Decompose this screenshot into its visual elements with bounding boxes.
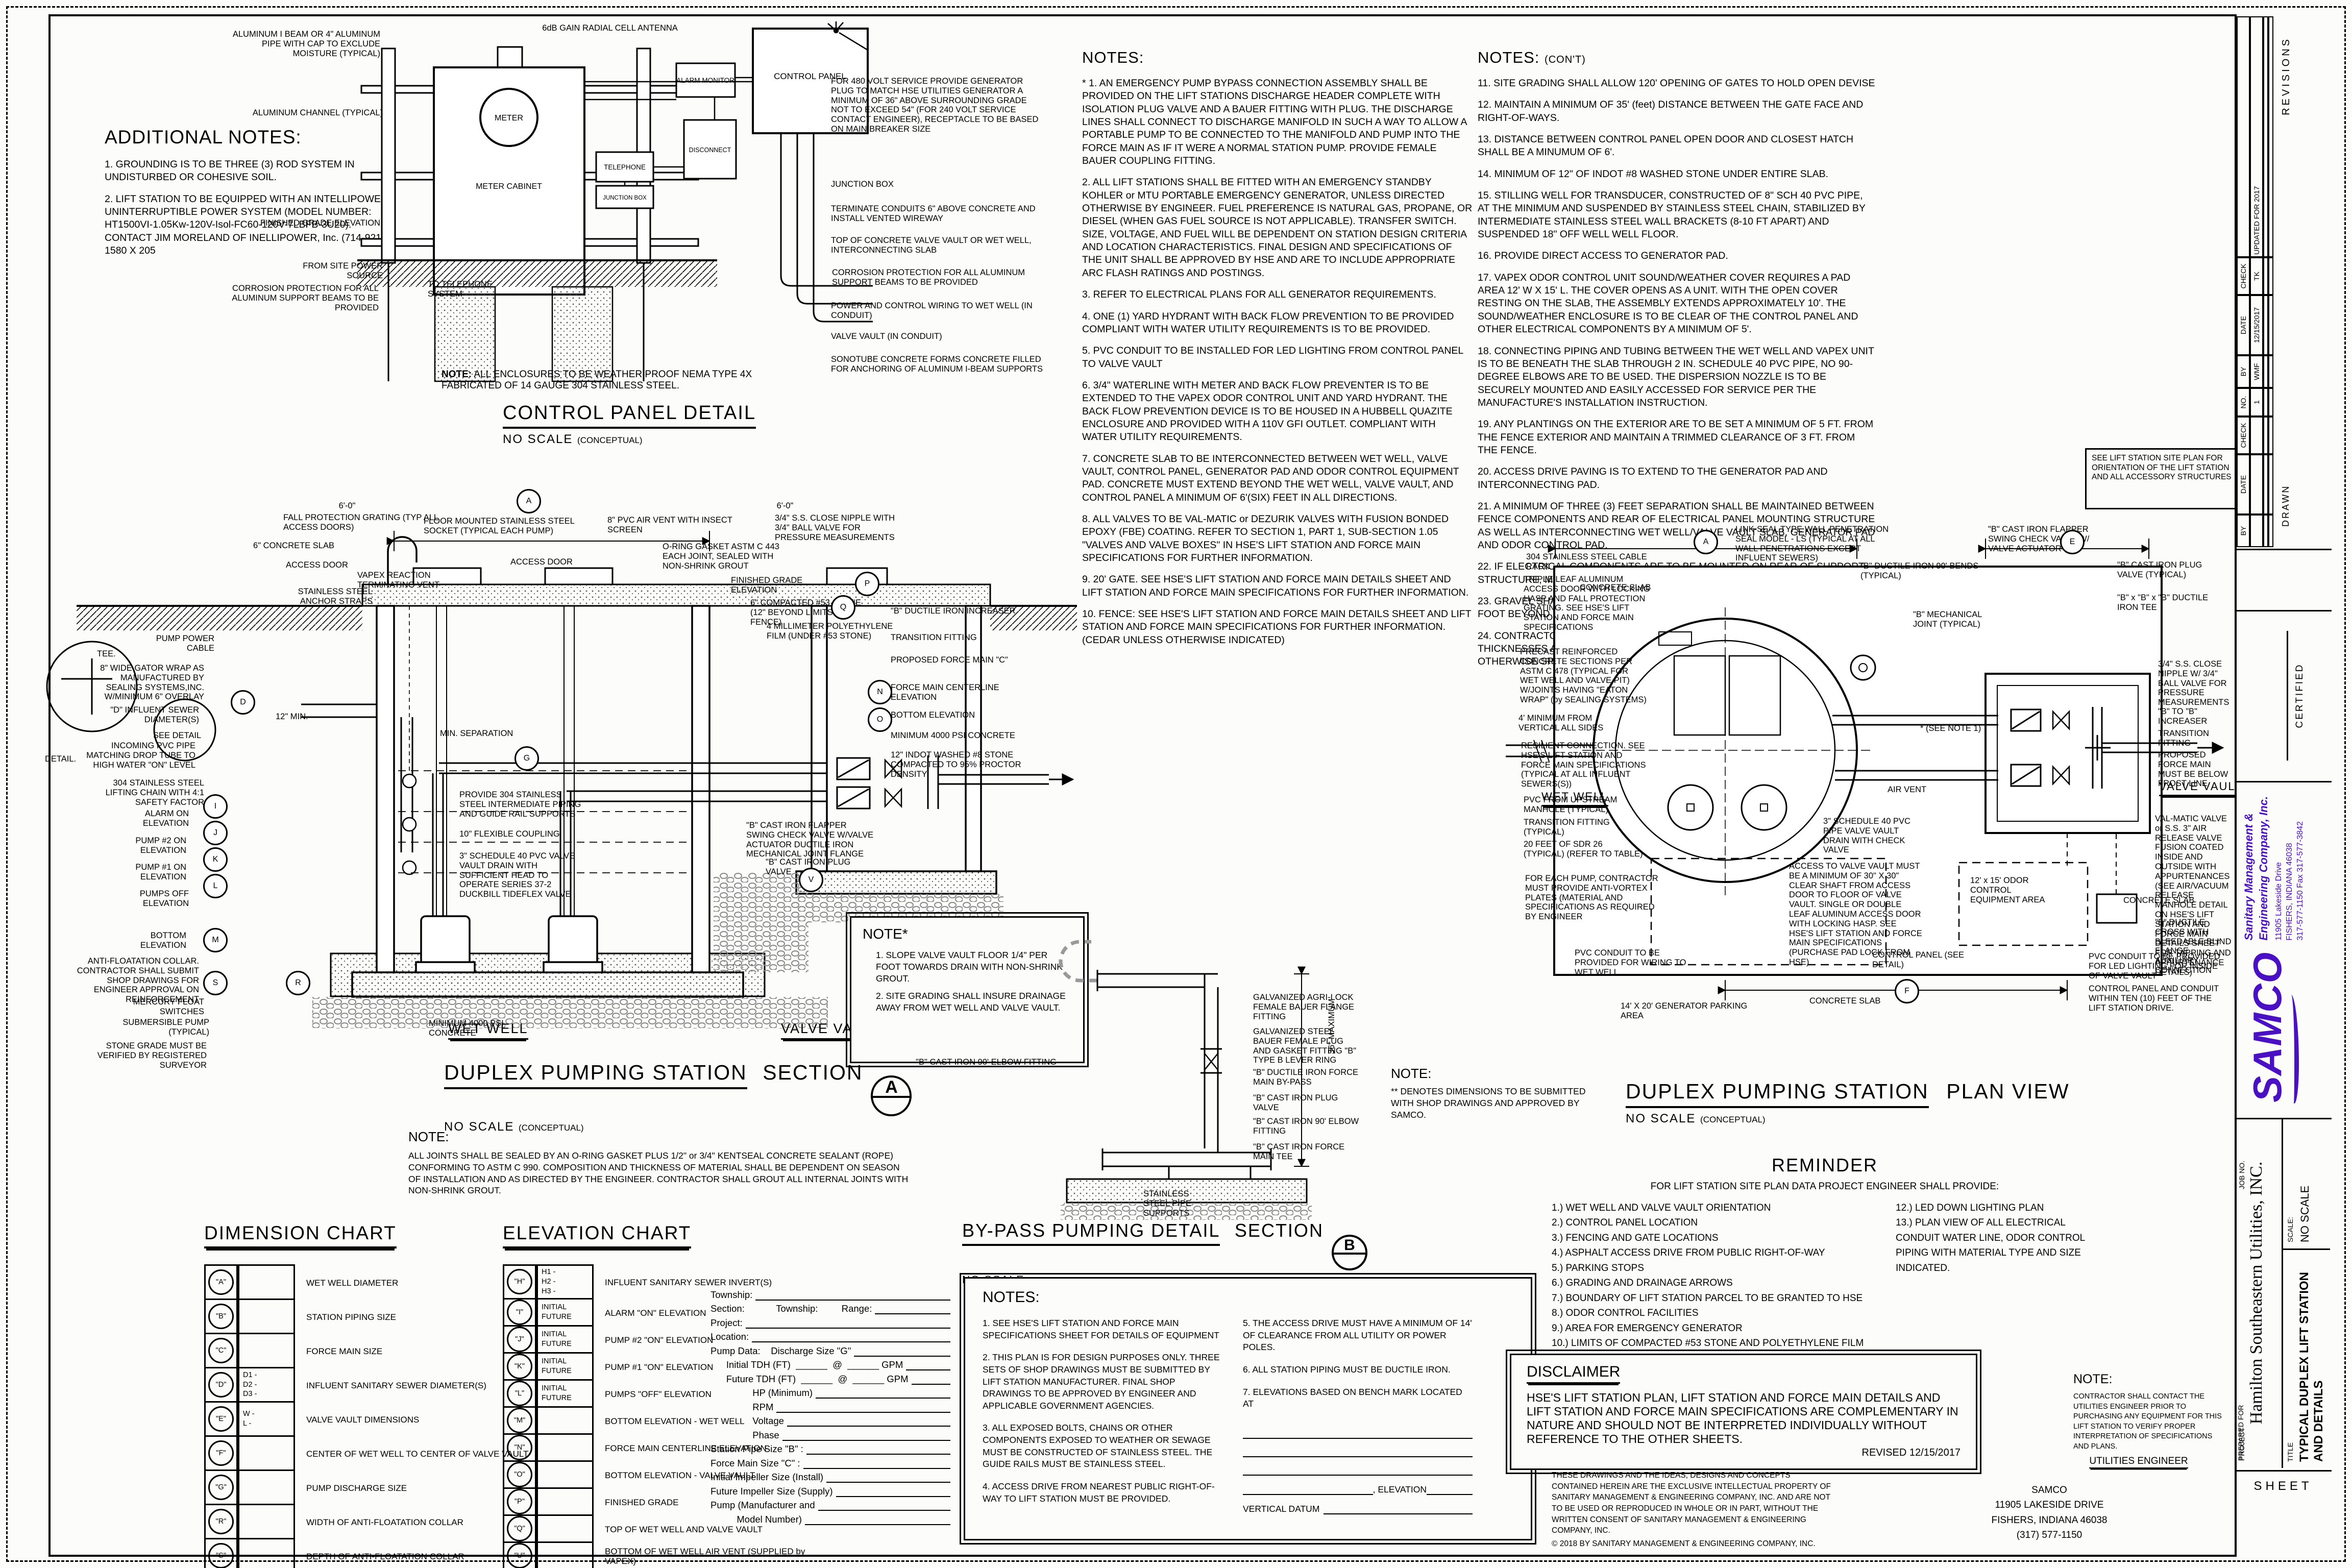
callout: * (SEE NOTE 1) bbox=[1920, 724, 1987, 733]
callout: "B" MECHANICAL JOINT (TYPICAL) bbox=[1913, 610, 2000, 629]
blank-rule bbox=[782, 1440, 950, 1441]
callout: STONE GRADE MUST BE VERIFIED BY REGISTER… bbox=[84, 1041, 207, 1070]
callout: "B" TO "B" INCREASER bbox=[2158, 707, 2232, 726]
disclaimer-revised: REVISED 12/15/2017 bbox=[1527, 1447, 1961, 1459]
reminder: REMINDER FOR LIFT STATION SITE PLAN DATA… bbox=[1552, 1155, 2098, 1381]
form-line: HP (Minimum) bbox=[710, 1385, 950, 1399]
reminder-item: 1.) WET WELL AND VALVE VAULT ORIENTATION bbox=[1552, 1200, 1878, 1215]
company-addr2: FISHERS, INDIANA 46038 bbox=[2285, 796, 2295, 941]
note-item: 20. ACCESS DRIVE PAVING IS TO EXTEND TO … bbox=[1478, 465, 1876, 492]
note-title: NOTE: bbox=[1391, 1066, 1610, 1082]
callout: SEE DETAIL bbox=[153, 731, 214, 741]
signature-line bbox=[2287, 631, 2288, 761]
section-balloon: B bbox=[1332, 1235, 1367, 1270]
callout: "B" CAST IRON PLUG VALVE bbox=[1253, 1093, 1360, 1113]
callout: 304 STAINLESS STEEL LIFTING CHAIN WITH 4… bbox=[84, 778, 204, 807]
junction-box-label: JUNCTION BOX bbox=[603, 195, 647, 201]
callout: "B" DUCTILE IRON INCREASER bbox=[891, 606, 1023, 616]
dim-balloon: O bbox=[868, 707, 892, 732]
note-item: 5. THE ACCESS DRIVE MUST HAVE A MINIMUM … bbox=[1243, 1317, 1473, 1354]
dim-balloon: L bbox=[203, 874, 228, 898]
callout: 3/4" S.S. CLOSE NIPPLE W/ 3/4" BALL VALV… bbox=[2158, 659, 2232, 707]
callout: 12" MIN. bbox=[276, 712, 322, 722]
callout: TO TELEPHONE SYSTEM bbox=[428, 280, 509, 299]
title-block-divider bbox=[2235, 1470, 2332, 1472]
dim-balloon: S bbox=[203, 971, 228, 995]
callout: "B" DUCTILE IRON FORCE MAIN BY-PASS bbox=[1253, 1068, 1360, 1087]
note-item: 7. ELEVATIONS BASED ON BENCH MARK LOCATE… bbox=[1243, 1386, 1473, 1410]
callout: 6" CONCRETE SLAB bbox=[232, 541, 334, 551]
callout: LINK-SEAL TYPE WALL PENETRATION SEAL MOD… bbox=[1735, 525, 1894, 563]
chart-row: "U" BOTTOM OF WET WELL AIR VENT (SUPPLIE… bbox=[503, 1543, 809, 1568]
notes-cont-title: NOTES: (CON'T) bbox=[1478, 48, 1876, 67]
callout: PUMP POWER CABLE bbox=[128, 634, 214, 653]
plan-title: DUPLEX PUMPING STATION bbox=[1626, 1080, 1929, 1108]
note-item: 2. ALL LIFT STATIONS SHALL BE FITTED WIT… bbox=[1082, 176, 1473, 280]
section-note: NOTE: ALL JOINTS SHALL BE SEALED BY AN O… bbox=[408, 1129, 914, 1196]
dim-balloon: A bbox=[1694, 530, 1718, 554]
benchmark-rule bbox=[1243, 1420, 1473, 1439]
section-balloon: A bbox=[871, 1075, 912, 1116]
callout: ALARM ON ELEVATION bbox=[105, 809, 189, 828]
dim-balloon: Q bbox=[831, 595, 855, 620]
dim-balloon: P bbox=[855, 572, 879, 596]
sonotube-footing bbox=[552, 287, 612, 381]
callout: GALVANIZED STEEL BAUER FEMALE PLUG AND G… bbox=[1253, 1027, 1360, 1065]
note-title: NOTE: bbox=[408, 1129, 914, 1145]
dim-balloon: R bbox=[286, 971, 310, 995]
certified-block: CERTIFIED bbox=[2237, 612, 2331, 779]
company-phone: 317-577-1150 Fax 317-577-3842 bbox=[2295, 796, 2306, 941]
blank-rule bbox=[776, 1412, 950, 1413]
sheet-box: SHEET bbox=[2237, 1479, 2330, 1493]
benchmark-rule bbox=[1243, 1457, 1473, 1476]
callout: "D" INFLUENT SEWER DIAMETER(S) bbox=[89, 705, 199, 725]
callout: CORROSION PROTECTION FOR ALL ALUMINUM SU… bbox=[832, 268, 1046, 287]
note-item: 6. ALL STATION PIPING MUST BE DUCTILE IR… bbox=[1243, 1364, 1473, 1376]
callout: DETAIL. bbox=[45, 754, 101, 764]
callout: PROPOSED FORCE MAIN "C" bbox=[891, 655, 1008, 665]
note-item: 9. 20' GATE. SEE HSE'S LIFT STATION AND … bbox=[1082, 573, 1473, 599]
callout: FOR 480 VOLT SERVICE PROVIDE GENERATOR P… bbox=[831, 77, 1045, 134]
drawing-sheet: ADDITIONAL NOTES: 1. GROUNDING IS TO BE … bbox=[0, 0, 2352, 1568]
scale-value: NO SCALE bbox=[2298, 1124, 2312, 1242]
form-line: Future TDH (FT) ______ @ ______ GPM bbox=[710, 1370, 950, 1385]
blank-rule bbox=[818, 1510, 950, 1511]
meter-cabinet-label: METER CABINET bbox=[476, 182, 542, 191]
reminder-subtitle: FOR LIFT STATION SITE PLAN DATA PROJECT … bbox=[1552, 1181, 2098, 1192]
plan-note: NOTE: ** DENOTES DIMENSIONS TO BE SUBMIT… bbox=[1391, 1066, 1610, 1120]
company-logo: SAMCO bbox=[2248, 952, 2299, 1102]
form-lines: Township:Section: Township: Range:Projec… bbox=[710, 1286, 950, 1525]
callout: PUMP #2 ON ELEVATION bbox=[105, 836, 186, 855]
reminder-item: 8.) ODOR CONTROL FACILITIES bbox=[1552, 1306, 1878, 1320]
note-item: 2. THIS PLAN IS FOR DESIGN PURPOSES ONLY… bbox=[983, 1352, 1222, 1412]
form-line: Project: bbox=[710, 1314, 950, 1329]
revisions-block: BY DATE CHECK NO. BY DATE CHECK 1 WMF 12… bbox=[2237, 16, 2331, 547]
form-line: Model Number) bbox=[710, 1511, 950, 1525]
blank-rule bbox=[746, 1328, 950, 1329]
reminder-title: REMINDER bbox=[1552, 1155, 2098, 1176]
plan-title-block: DUPLEX PUMPING STATION PLAN VIEW NO SCAL… bbox=[1626, 1080, 2070, 1126]
callout: 14' X 20' GENERATOR PARKING AREA bbox=[1621, 1001, 1763, 1021]
certified-label: CERTIFIED bbox=[2294, 612, 2306, 779]
callout: RESILIENT CONNECTION. SEE HSE'S LIFT STA… bbox=[1521, 741, 1651, 789]
blank-rule bbox=[803, 1468, 950, 1469]
callout: "B" CAST IRON PLUG VALVE (TYPICAL) bbox=[2117, 560, 2222, 580]
reminder-item: 6.) GRADING AND DRAINAGE ARROWS bbox=[1552, 1276, 1878, 1290]
callout: BOTTOM ELEVATION bbox=[105, 931, 186, 950]
bauer-hose-hook bbox=[1061, 942, 1097, 981]
callout: CORROSION PROTECTION FOR ALL ALUMINUM SU… bbox=[220, 284, 379, 312]
callout: TRANSITION FITTING bbox=[2158, 729, 2232, 748]
blank-rule bbox=[912, 1384, 950, 1385]
callout: FLOOR MOUNTED STAINLESS STEEL SOCKET (TY… bbox=[424, 517, 587, 536]
callout: O-RING GASKET ASTM C 443 EACH JOINT, SEA… bbox=[663, 542, 785, 571]
callout: PUMP #1 ON ELEVATION bbox=[105, 863, 186, 882]
callout: SONOTUBE CONCRETE FORMS CONCRETE FILLED … bbox=[831, 355, 1045, 374]
blank-rule bbox=[816, 1398, 950, 1399]
access-hatch bbox=[545, 568, 612, 584]
callout: SUBMERSIBLE PUMP (TYPICAL) bbox=[94, 1018, 209, 1037]
form-line: Pump (Manufacturer and bbox=[710, 1497, 950, 1511]
job-no-label: JOB NO. bbox=[2238, 1123, 2249, 1189]
company-name1: Sanitary Management & bbox=[2242, 796, 2257, 941]
scale-label: SCALE: bbox=[2286, 1124, 2294, 1242]
callout: STAINLESS STEEL PIPE SUPPORTS bbox=[1143, 1189, 1210, 1218]
company-block: SAMCO Sanitary Management & Engineering … bbox=[2237, 783, 2331, 1116]
note-item: 15. STILLING WELL FOR TRANSDUCER, CONSTR… bbox=[1478, 189, 1876, 241]
callout: 3/4" S.S. CLOSE NIPPLE WITH 3/4" BALL VA… bbox=[775, 513, 908, 542]
disclaimer: DISCLAIMER HSE'S LIFT STATION PLAN, LIFT… bbox=[1510, 1354, 1977, 1470]
stone-bed bbox=[312, 997, 828, 1028]
additional-notes: ADDITIONAL NOTES: 1. GROUNDING IS TO BE … bbox=[105, 127, 390, 266]
form-line: Township: bbox=[710, 1286, 950, 1301]
callout: PVC CONDUIT TO BE PROVIDED FOR WIRING TO… bbox=[1575, 948, 1692, 977]
grade-and-footings bbox=[357, 260, 717, 381]
reminder-item: 13.) PLAN VIEW OF ALL ELECTRICAL CONDUIT… bbox=[1896, 1215, 2090, 1276]
notes-box-title: NOTES: bbox=[983, 1289, 1513, 1306]
note-item: 4. ACCESS DRIVE FROM NEAREST PUBLIC RIGH… bbox=[983, 1481, 1222, 1505]
title-block-divider bbox=[2235, 549, 2332, 550]
conceptual-label: (CONCEPTUAL) bbox=[577, 435, 643, 445]
reminder-item: 12.) LED DOWN LIGHTING PLAN bbox=[1896, 1200, 2090, 1215]
callout: 6'-0" bbox=[327, 501, 367, 511]
note-item: 4. ONE (1) YARD HYDRANT WITH BACK FLOW P… bbox=[1082, 310, 1473, 336]
logo-swoosh bbox=[2286, 991, 2299, 1107]
dim-balloon: D bbox=[231, 690, 255, 715]
note-item: 17. VAPEX ODOR CONTROL UNIT SOUND/WEATHE… bbox=[1478, 272, 1876, 336]
project-label: PROJECT bbox=[2238, 1394, 2249, 1461]
note-item: 11. SITE GRADING SHALL ALLOW 120' OPENIN… bbox=[1478, 77, 1876, 90]
backfill-stone bbox=[714, 873, 808, 972]
note-item: 19. ANY PLANTINGS ON THE EXTERIOR ARE TO… bbox=[1478, 418, 1876, 457]
elevation-suffix: , ELEVATION bbox=[1373, 1484, 1427, 1495]
note-item: 12. MAINTAIN A MINIMUM OF 35' (feet) DIS… bbox=[1478, 99, 1876, 125]
disclaimer-body: HSE'S LIFT STATION PLAN, LIFT STATION AN… bbox=[1527, 1391, 1961, 1446]
reminder-item: 2.) CONTROL PANEL LOCATION bbox=[1552, 1215, 1878, 1230]
callout: "B" CAST IRON 90' ELBOW FITTING bbox=[914, 1058, 1057, 1067]
callout: ACCESS DOOR bbox=[510, 557, 582, 567]
blank-rule bbox=[752, 1341, 950, 1342]
callout: FOR EACH PUMP, CONTRACTOR MUST PROVIDE A… bbox=[1525, 874, 1663, 922]
wet-well-wall bbox=[692, 606, 709, 972]
project-info-block: PREPARED FOR Hamilton Southeastern Utili… bbox=[2237, 1118, 2331, 1468]
note-item: 14. MINIMUM OF 12" OF INDOT #8 WASHED ST… bbox=[1478, 168, 1876, 181]
section-title-block: DUPLEX PUMPING STATION SECTIONA NO SCALE… bbox=[444, 1061, 912, 1134]
callout: POWER AND CONTROL WIRING TO WET WELL (IN… bbox=[831, 301, 1045, 321]
callout: CONTROL PANEL AND CONDUIT WITHIN TEN (10… bbox=[2089, 984, 2224, 1013]
address-line1: 11905 LAKESIDE DRIVE bbox=[1963, 1498, 2136, 1512]
address-company: SAMCO bbox=[1963, 1483, 2136, 1498]
reminder-item: 5.) PARKING STOPS bbox=[1552, 1261, 1878, 1276]
callout: MERCURY FLOAT SWITCHES bbox=[97, 997, 204, 1017]
callout: JUNCTION BOX bbox=[831, 180, 933, 189]
callout: PRECAST REINFORCED CONCRETE SECTIONS PER… bbox=[1520, 647, 1648, 705]
bypass-title: BY-PASS PUMPING DETAIL bbox=[962, 1220, 1220, 1246]
section-title: DUPLEX PUMPING STATION bbox=[444, 1061, 747, 1089]
note-text: ALL ENCLOSURES TO BE WEATHER PROOF NEMA … bbox=[442, 369, 752, 391]
dim-balloon: K bbox=[203, 847, 228, 872]
copyright-body: THESE DRAWINGS AND THE IDEAS, DESIGNS AN… bbox=[1552, 1470, 1837, 1536]
reminder-item: 9.) AREA FOR EMERGENCY GENERATOR bbox=[1552, 1321, 1878, 1336]
address-line2: FISHERS, INDIANA 46038 bbox=[1963, 1513, 2136, 1528]
copyright: THESE DRAWINGS AND THE IDEAS, DESIGNS AN… bbox=[1552, 1470, 1837, 1550]
note-body: ALL JOINTS SHALL BE SEALED BY AN O-RING … bbox=[408, 1150, 914, 1196]
note-item: 3. ALL EXPOSED BOLTS, CHAINS OR OTHER CO… bbox=[983, 1422, 1222, 1471]
note-item: 6. 3/4" WATERLINE WITH METER AND BACK FL… bbox=[1082, 379, 1473, 444]
note-item: 18. CONNECTING PIPING AND TUBING BETWEEN… bbox=[1478, 345, 1876, 410]
callout: GALVANIZED AGRI-LOCK FEMALE BAUER FLANGE… bbox=[1253, 993, 1360, 1021]
dim-balloon: N bbox=[868, 680, 892, 704]
blank-rule bbox=[755, 1300, 950, 1301]
engineer-note: NOTE: CONTRACTOR SHALL CONTACT THE UTILI… bbox=[2073, 1372, 2226, 1452]
callout: 12" INDOT WASHED #8 STONE COMPACTED TO 9… bbox=[891, 750, 1034, 779]
form-line: Future Impeller Size (Supply) bbox=[710, 1483, 950, 1497]
callout: "B" CAST IRON FLAPPER SWING CHECK VALVE … bbox=[1988, 525, 2113, 553]
callout: "B" x "B" x "B" DUCTILE IRON TEE bbox=[2117, 593, 2222, 612]
dimension-chart-title: DIMENSION CHART bbox=[204, 1222, 397, 1248]
dim-balloon: G bbox=[514, 746, 539, 771]
form-line: Initial Impeller Size (Install) bbox=[710, 1469, 950, 1483]
form-line: RPM bbox=[710, 1399, 950, 1413]
callout: "B" CAST IRON FORCE MAIN TEE bbox=[1253, 1142, 1360, 1162]
note-item: 3. REFER TO ELECTRICAL PLANS FOR ALL GEN… bbox=[1082, 288, 1473, 301]
callout: TERMINATE CONDUITS 6" ABOVE CONCRETE AND… bbox=[831, 204, 1045, 224]
callout: ALUMINUM CHANNEL (TYPICAL) bbox=[240, 108, 383, 118]
callout: STAINLESS STEEL ANCHOR STRAPS bbox=[265, 587, 373, 606]
note-item: 16. PROVIDE DIRECT ACCESS TO GENERATOR P… bbox=[1478, 250, 1876, 262]
notes-box-left: 1. SEE HSE'S LIFT STATION AND FORCE MAIN… bbox=[983, 1317, 1222, 1515]
revisions-table: BY DATE CHECK NO. BY DATE CHECK 1 WMF 12… bbox=[2237, 16, 2273, 547]
station-data-form: Township:Section: Township: Range:Projec… bbox=[710, 1286, 950, 1525]
note-title: NOTE: bbox=[2073, 1372, 2226, 1387]
callout: 3" SCHEDULE 40 PVC VALVE VAULT DRAIN WIT… bbox=[459, 851, 587, 899]
note-item: 13. DISTANCE BETWEEN CONTROL PANEL OPEN … bbox=[1478, 133, 1876, 159]
callout: FINISHED GRADE ELEVATION bbox=[731, 576, 848, 595]
callout: 6dB GAIN RADIAL CELL ANTENNA bbox=[541, 23, 679, 33]
form-line: Phase bbox=[710, 1427, 950, 1441]
drawn-label: DRAWN bbox=[2281, 485, 2292, 527]
callout: FORCE MAIN CENTERLINE ELEVATION bbox=[891, 683, 1018, 702]
wet-well-label: WET WELL bbox=[448, 1021, 528, 1040]
dim-balloon: E bbox=[2060, 530, 2085, 554]
prepared-for: Hamilton Southeastern Utilities, INC. bbox=[2247, 1118, 2266, 1468]
callout: TRANSITION FITTING (TYPICAL) bbox=[1524, 818, 1641, 837]
blank-rule bbox=[854, 1356, 950, 1357]
meter-label: METER bbox=[495, 114, 523, 122]
form-line: Voltage bbox=[710, 1413, 950, 1427]
callout: 36" MAXIMUM bbox=[1327, 988, 1337, 1054]
disconnect-label: DISCONNECT bbox=[689, 146, 731, 154]
notes-title: NOTES: bbox=[1082, 48, 1473, 67]
note-item: 7. CONCRETE SLAB TO BE INTERCONNECTED BE… bbox=[1082, 453, 1473, 504]
alarm-monitor-label: ALARM MONITOR bbox=[676, 77, 734, 84]
dim-balloon: J bbox=[203, 821, 228, 845]
callout: PVC FROM UPSTREAM MANHOLE (TYPICAL) bbox=[1524, 795, 1646, 815]
reminder-item: 10.) LIMITS OF COMPACTED #53 STONE AND P… bbox=[1552, 1336, 1878, 1351]
revisions-label: REVISIONS bbox=[2281, 37, 2292, 115]
sonotube-footing bbox=[435, 287, 495, 381]
callout: 8" WIDE GATOR WRAP AS MANUFACTURED BY SE… bbox=[84, 664, 204, 702]
note-body: CONTRACTOR SHALL CONTACT THE UTILITIES E… bbox=[2073, 1392, 2226, 1452]
note-item: 1. SEE HSE'S LIFT STATION AND FORCE MAIN… bbox=[983, 1317, 1222, 1341]
callout: 8" PVC AIR VENT WITH INSECT SCREEN bbox=[607, 516, 735, 535]
blank-rule bbox=[826, 1482, 950, 1483]
callout: 3" SCHEDULE 40 PVC PIPE VALVE VAULT DRAI… bbox=[1823, 817, 1918, 855]
benchmark-rule bbox=[1243, 1439, 1473, 1457]
blank-rule bbox=[875, 1313, 950, 1314]
bottom-notes-box: NOTES: 1. SEE HSE'S LIFT STATION AND FOR… bbox=[964, 1277, 1532, 1540]
blank-rule bbox=[906, 1369, 950, 1370]
company-addr1: 11905 Lakeside Drive bbox=[2274, 796, 2285, 941]
note-item: * 1. AN EMERGENCY PUMP BYPASS CONNECTION… bbox=[1082, 77, 1473, 167]
form-line: Force Main Size "C" : bbox=[710, 1455, 950, 1469]
form-line: Pump Data: Discharge Size "G" bbox=[710, 1342, 950, 1357]
callout: 4' MINIMUM FROM VERTICAL ALL SIDES bbox=[1518, 714, 1626, 733]
orientation-note-box: SEE LIFT STATION SITE PLAN FOR ORIENTATI… bbox=[2085, 448, 2242, 509]
elevation-chart-title: ELEVATION CHART bbox=[503, 1222, 691, 1248]
sheet-label: SHEET bbox=[2253, 1479, 2312, 1493]
callout: VALVE VAULT (IN CONDUIT) bbox=[831, 332, 984, 341]
note-item: 10. FENCE: SEE HSE'S LIFT STATION AND FO… bbox=[1082, 608, 1473, 647]
reminder-item: 7.) BOUNDARY OF LIFT STATION PARCEL TO B… bbox=[1552, 1291, 1878, 1306]
note-item: 5. PVC CONDUIT TO BE INSTALLED FOR LED L… bbox=[1082, 345, 1473, 371]
form-line: Initial TDH (FT) ______ @ ______ GPM bbox=[710, 1357, 950, 1371]
company-name2: Engineering Company, Inc. bbox=[2257, 796, 2271, 941]
callout: 4 MILLIMETER POLYETHYLENE FILM (UNDER #5… bbox=[767, 622, 894, 641]
note-body: ** DENOTES DIMENSIONS TO BE SUBMITTED WI… bbox=[1391, 1086, 1610, 1120]
notes-list: * 1. AN EMERGENCY PUMP BYPASS CONNECTION… bbox=[1082, 77, 1473, 647]
reminder-item: 4.) ASPHALT ACCESS DRIVE FROM PUBLIC RIG… bbox=[1552, 1245, 1878, 1260]
callout: TEE. bbox=[97, 649, 133, 659]
bypass-title-block: BY-PASS PUMPING DETAIL SECTIONB NO SCALE… bbox=[962, 1220, 1367, 1286]
telephone-label: TELEPHONE bbox=[604, 163, 646, 171]
callout: AIR VENT bbox=[1888, 785, 1944, 795]
callout: 12' x 15' ODOR CONTROL EQUIPMENT AREA bbox=[1970, 876, 2057, 904]
control-panel-note: NOTE: ALL ENCLOSURES TO BE WEATHER PROOF… bbox=[442, 369, 768, 391]
blank-rule bbox=[805, 1524, 950, 1525]
vertical-datum-label: VERTICAL DATUM bbox=[1243, 1504, 1319, 1514]
additional-notes-list: 1. GROUNDING IS TO BE THREE (3) ROD SYST… bbox=[105, 158, 390, 257]
address-phone: (317) 577-1150 bbox=[1963, 1528, 2136, 1542]
dim-balloon: I bbox=[203, 794, 228, 819]
callout: 20 FEET OF SDR 26 (TYPICAL) (REFER TO TA… bbox=[1524, 840, 1644, 859]
callout: ACCESS TO VALVE VAULT MUST BE A MINIMUM … bbox=[1789, 862, 1923, 967]
callout: MINIMUM 4000 PSI CONCRETE bbox=[891, 731, 1034, 741]
callout: PVC CONDUIT TO BE PROVIDED FOR LED LIGHT… bbox=[2089, 952, 2224, 981]
callout: 304 STAINLESS STEEL CABLE RACK bbox=[1526, 552, 1654, 572]
callout: 6'-0" bbox=[765, 501, 805, 511]
form-line: Station Pipe Size "B" : bbox=[710, 1441, 950, 1455]
dim-balloon: V bbox=[799, 868, 823, 892]
title-block-divider bbox=[2235, 781, 2332, 782]
callout: ACCESS DOOR bbox=[286, 560, 362, 570]
callout: PROVIDE 304 STAINLESS STEEL INTERMEDIATE… bbox=[459, 790, 587, 819]
form-line: Location: bbox=[710, 1329, 950, 1343]
utilities-engineer-heading: UTILITIES ENGINEER bbox=[2052, 1456, 2225, 1467]
bypass-piping bbox=[1097, 970, 1271, 1179]
callout: TRIPLE LEAF ALUMINUM ACCESS DOOR WITH LO… bbox=[1524, 575, 1659, 632]
callout: "B" CAST IRON 90' ELBOW FITTING bbox=[1253, 1117, 1360, 1136]
callout: PROPOSED FORCE MAIN MUST BE BELOW FROST … bbox=[2158, 750, 2232, 789]
section-label: SECTION bbox=[763, 1061, 863, 1087]
callout: TOP OF CONCRETE VALVE VAULT OR WET WELL,… bbox=[831, 236, 1045, 255]
control-panel-title: CONTROL PANEL DETAIL bbox=[503, 402, 756, 429]
title-label: TITLE bbox=[2286, 1256, 2294, 1462]
utilities-engineer-address: SAMCO 11905 LAKESIDE DRIVE FISHERS, INDI… bbox=[1963, 1483, 2136, 1543]
blank-rule bbox=[806, 1454, 950, 1455]
callout: MIN. SEPARATION bbox=[440, 729, 527, 739]
form-line: Section: Township: Range: bbox=[710, 1301, 950, 1315]
plan-view-label: PLAN VIEW bbox=[1946, 1080, 2069, 1106]
callout: VAPEX REACTION TERMINATING VENT bbox=[357, 571, 459, 590]
note-item: 1. GROUNDING IS TO BE THREE (3) ROD SYST… bbox=[105, 158, 390, 184]
reminder-item: 3.) FENCING AND GATE LOCATIONS bbox=[1552, 1231, 1878, 1245]
dim-balloon: M bbox=[203, 928, 228, 952]
control-panel-detail-drawing: METER METER CABINET CONTROL PANEL ALARM … bbox=[357, 20, 873, 388]
sheet-title: TYPICAL DUPLEX LIFT STATION AND DETAILS bbox=[2297, 1256, 2325, 1462]
callout: 10" FLEXIBLE COUPLING bbox=[459, 829, 567, 839]
note-item: 8. ALL VALVES TO BE VAL-MATIC or DEZURIK… bbox=[1082, 513, 1473, 565]
notes-main: NOTES: * 1. AN EMERGENCY PUMP BYPASS CON… bbox=[1082, 48, 1473, 655]
scale-label: NO SCALE bbox=[503, 432, 573, 446]
blank-rule bbox=[787, 1426, 950, 1427]
callout: TRANSITION FITTING bbox=[891, 633, 993, 643]
callout: ALUMINUM I BEAM OR 4" ALUMINUM PIPE WITH… bbox=[227, 30, 380, 58]
blank-rule bbox=[836, 1496, 950, 1497]
callout: PUMPS OFF ELEVATION bbox=[105, 889, 189, 909]
callout: "B" DUCTILE IRON 90' BENDS (TYPICAL) bbox=[1860, 561, 1998, 581]
note-label: NOTE: bbox=[442, 369, 472, 380]
wet-well-floor bbox=[352, 972, 743, 997]
disclaimer-title: DISCLAIMER bbox=[1527, 1363, 1620, 1384]
dim-balloon: A bbox=[517, 489, 541, 513]
additional-notes-title: ADDITIONAL NOTES: bbox=[105, 127, 390, 148]
callout: "B" CAST IRON FLAPPER SWING CHECK VALVE … bbox=[746, 821, 874, 859]
callout: BOTTOM ELEVATION bbox=[891, 710, 993, 720]
title-block-divider bbox=[2235, 610, 2332, 611]
control-panel-title-block: CONTROL PANEL DETAIL NO SCALE (CONCEPTUA… bbox=[503, 402, 756, 447]
notes-box-right: 5. THE ACCESS DRIVE MUST HAVE A MINIMUM … bbox=[1243, 1317, 1473, 1515]
dim-balloon: F bbox=[1895, 979, 1919, 1003]
callout: FINISHED GRADE ELEVATION bbox=[258, 218, 380, 228]
copyright-line2: © 2018 BY SANITARY MANAGEMENT & ENGINEER… bbox=[1552, 1538, 1837, 1550]
wet-well-wall bbox=[377, 606, 394, 972]
callout: FROM SITE POWER SOURCE bbox=[265, 261, 383, 281]
